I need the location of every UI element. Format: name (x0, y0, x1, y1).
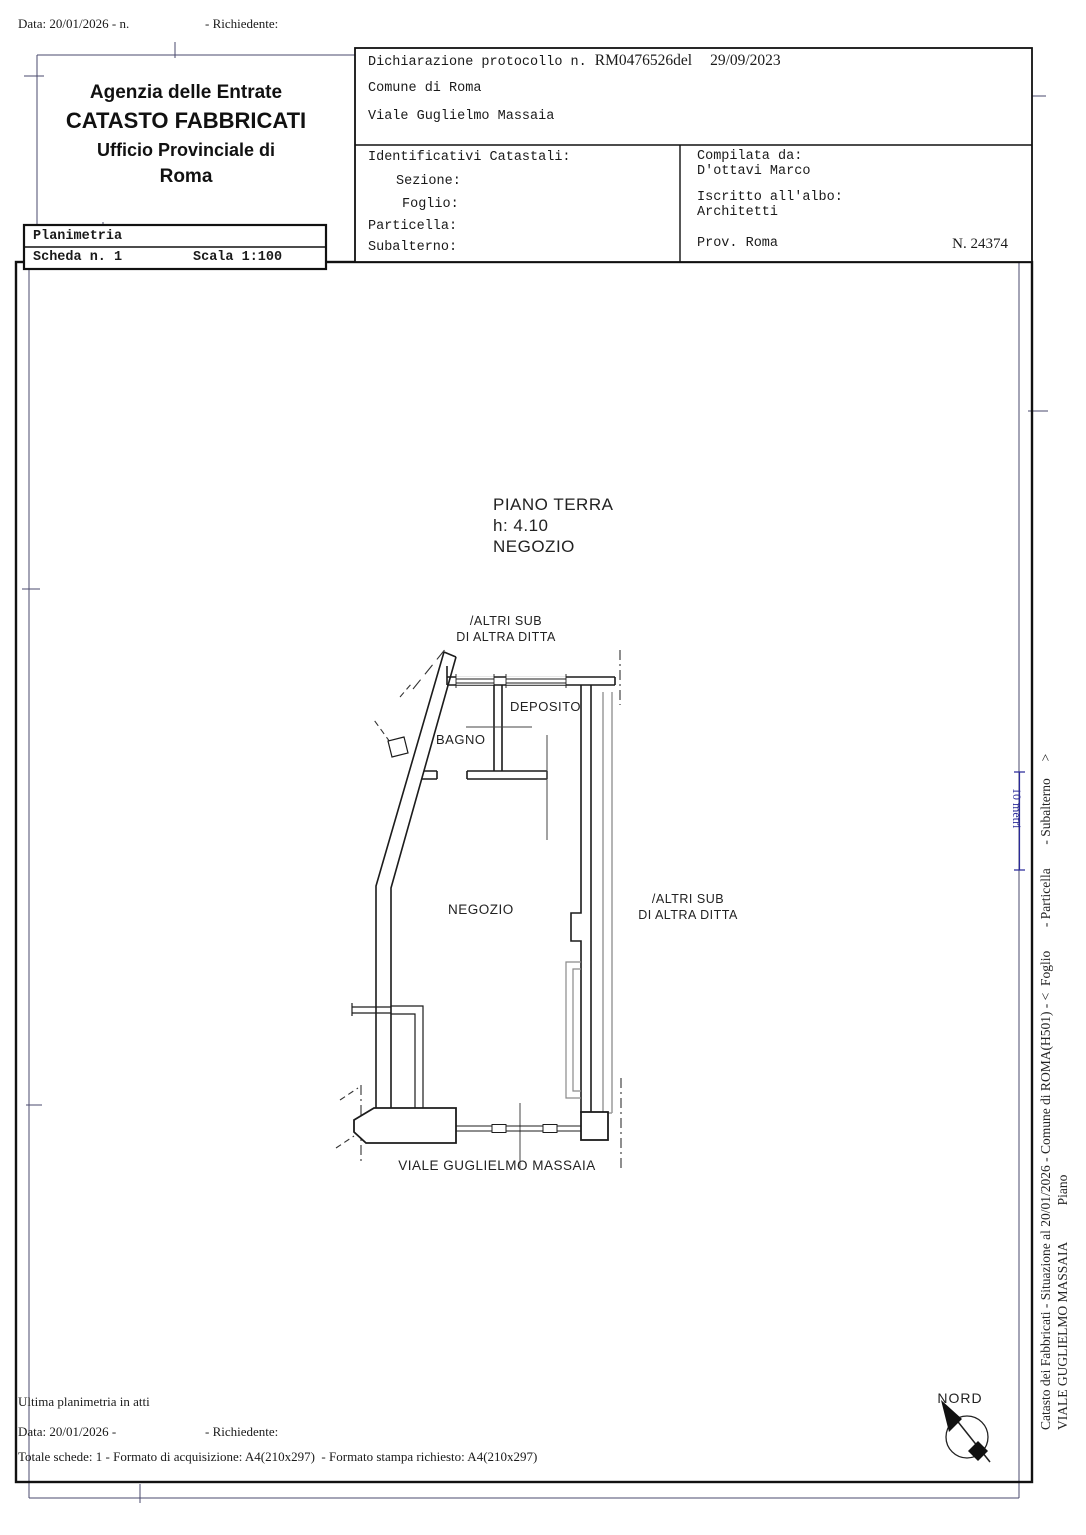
compilata-name: D'ottavi Marco (697, 164, 810, 179)
compass-label: NORD (930, 1390, 990, 1406)
side-caption-line2: VIALE GUGLIELMO MASSAIA Piano (1055, 1175, 1071, 1430)
room-label-bagno: BAGNO (436, 732, 485, 747)
agency-name: Agenzia delle Entrate (40, 82, 332, 104)
plan-walls (376, 652, 615, 1113)
registry-name: CATASTO FABBRICATI (40, 108, 332, 134)
side-caption-line1: Catasto dei Fabbricati - Situazione al 2… (1038, 754, 1054, 1430)
footer-line3: Totale schede: 1 - Formato di acquisizio… (18, 1449, 537, 1465)
cadastral-document-page: Data: 20/01/2026 - n. - Richiedente: Age… (0, 0, 1086, 1535)
foglio-label: Foglio: (402, 197, 459, 212)
plan-fixture-left (352, 1003, 423, 1111)
floor-title-block: PIANO TERRA h: 4.10 NEGOZIO (493, 494, 613, 557)
prov-label: Prov. Roma (697, 236, 778, 251)
protocol-date: 29/09/2023 (710, 52, 781, 69)
albo-label: Iscritto all'albo: (697, 190, 843, 205)
footer-line1: Ultima planimetria in atti (18, 1394, 150, 1410)
neighbor-label-top: /ALTRI SUB DI ALTRA DITTA (418, 613, 594, 645)
office-city: Roma (40, 166, 332, 188)
protocol-number: RM0476526del (595, 52, 692, 69)
comune-line: Comune di Roma (368, 81, 481, 96)
plan-aux-lines (466, 727, 547, 1168)
floorplan-drawing (0, 0, 1086, 1535)
subalterno-label: Subalterno: (368, 240, 457, 255)
office-name: Ufficio Provinciale di (40, 140, 332, 161)
footer-date-line: Data: 20/01/2026 - (18, 1424, 116, 1440)
neighbor-label-right: /ALTRI SUB DI ALTRA DITTA (604, 891, 772, 923)
top-richiedente-label: - Richiedente: (205, 16, 278, 32)
protocol-line: Dichiarazione protocollo n. RM0476526del… (368, 52, 781, 70)
floor-height: h: 4.10 (493, 515, 613, 536)
sezione-label: Sezione: (396, 174, 461, 189)
plan-fixtures (566, 962, 581, 1098)
planimetria-title: Planimetria (33, 229, 122, 244)
scale-value: Scala 1:100 (193, 250, 282, 265)
plan-storefront (354, 1108, 608, 1143)
room-label-negozio: NEGOZIO (448, 902, 514, 917)
albo-value: Architetti (697, 205, 778, 220)
sheet-number: Scheda n. 1 (33, 250, 122, 265)
compilata-label: Compilata da: (697, 149, 802, 164)
street-label: VIALE GUGLIELMO MASSAIA (375, 1158, 619, 1173)
compass-icon (941, 1400, 990, 1462)
neighbor-top-line2: DI ALTRA DITTA (418, 629, 594, 645)
protocol-label: Dichiarazione protocollo n. (368, 55, 587, 70)
floor-title: PIANO TERRA (493, 494, 613, 515)
neighbor-right-line1: /ALTRI SUB (604, 891, 772, 907)
particella-label: Particella: (368, 219, 457, 234)
top-date-line: Data: 20/01/2026 - n. (18, 16, 129, 32)
neighbor-top-line1: /ALTRI SUB (418, 613, 594, 629)
room-label-deposito: DEPOSITO (510, 699, 581, 714)
identificativi-title: Identificativi Catastali: (368, 150, 571, 165)
albo-number: N. 24374 (900, 236, 1008, 253)
address-line: Viale Guglielmo Massaia (368, 109, 554, 124)
frame-boxes (16, 48, 1032, 1482)
scale-bar-label: 10 metri (1009, 788, 1024, 828)
footer-richiedente-label: - Richiedente: (205, 1424, 278, 1440)
floor-use: NEGOZIO (493, 536, 613, 557)
plan-wall-protrusion (388, 737, 408, 757)
plan-windows (456, 674, 566, 688)
neighbor-right-line2: DI ALTRA DITTA (604, 907, 772, 923)
